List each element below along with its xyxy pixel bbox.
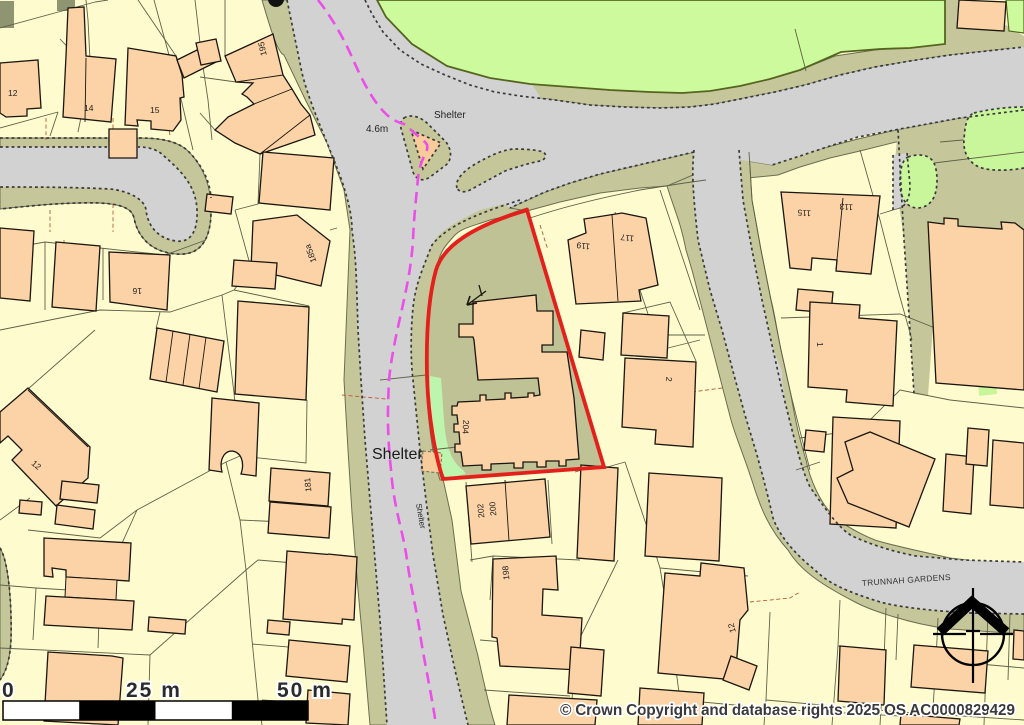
- svg-text:115: 115: [797, 208, 811, 219]
- svg-text:50 m: 50 m: [277, 679, 333, 702]
- svg-text:119: 119: [576, 240, 591, 252]
- svg-text:113: 113: [839, 202, 853, 213]
- svg-text:14: 14: [84, 103, 94, 113]
- svg-text:202: 202: [475, 503, 486, 518]
- svg-text:15: 15: [150, 105, 160, 115]
- svg-text:25 m: 25 m: [126, 679, 182, 702]
- svg-text:1: 1: [815, 342, 825, 347]
- svg-text:200: 200: [487, 501, 498, 516]
- svg-text:181: 181: [302, 477, 313, 492]
- svg-text:198: 198: [500, 565, 511, 580]
- svg-text:0: 0: [2, 679, 14, 702]
- svg-text:12: 12: [8, 88, 18, 98]
- svg-text:16: 16: [132, 286, 142, 296]
- svg-text:Shelter: Shelter: [372, 446, 423, 463]
- svg-text:204: 204: [460, 420, 471, 435]
- svg-text:117: 117: [620, 232, 635, 244]
- svg-text:© Crown Copyright and database: © Crown Copyright and database rights 20…: [560, 702, 1015, 719]
- svg-text:Shelter: Shelter: [434, 110, 466, 121]
- svg-text:4.6m: 4.6m: [366, 124, 388, 135]
